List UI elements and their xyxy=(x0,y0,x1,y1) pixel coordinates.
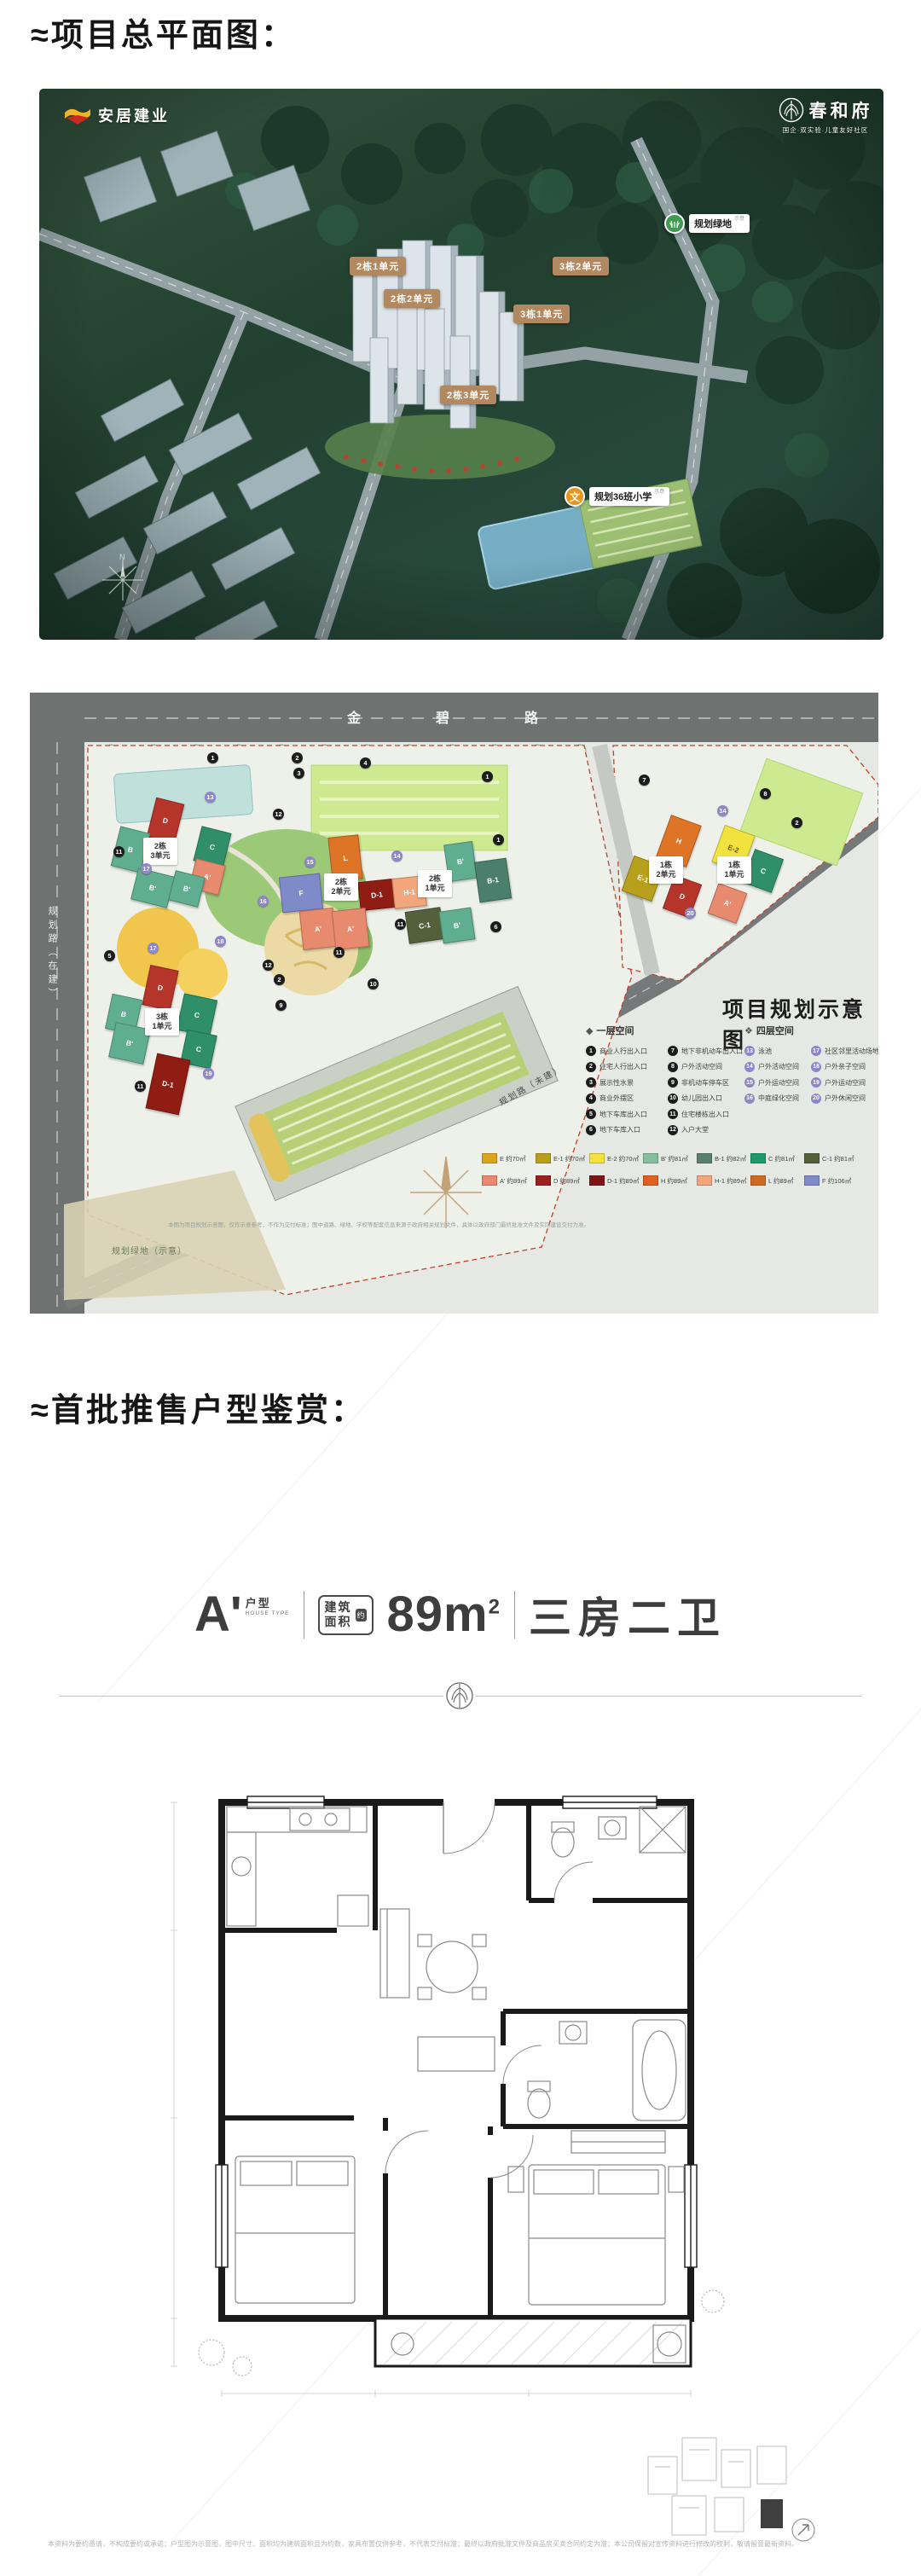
tower-label: 2栋2单元 xyxy=(384,289,440,308)
green-reserve-label: 规划绿地（示意） xyxy=(112,1244,187,1256)
legend-item: 18户外亲子空间 xyxy=(811,1062,878,1072)
compass-icon: N xyxy=(99,556,147,604)
map-marker: 12 xyxy=(273,809,284,820)
unit-type-swatch: D 约89㎡ xyxy=(536,1175,583,1186)
map-marker: 11 xyxy=(395,919,406,930)
unit-type-swatch: A' 约89㎡ xyxy=(482,1175,530,1186)
color-chip xyxy=(482,1175,497,1186)
area-label-box: 建筑 面积 约 xyxy=(318,1595,374,1635)
road-name-top: 金碧路 xyxy=(347,706,613,727)
map-marker: 2 xyxy=(274,974,285,985)
map-marker: 1 xyxy=(493,834,504,845)
unit-code-text: A' xyxy=(194,1590,242,1639)
map-marker: 19 xyxy=(203,1068,214,1079)
green-space-label: 规划绿地 xyxy=(694,217,732,230)
legend-ground-title: 一层空间 xyxy=(596,1024,634,1037)
legend-ground-col1: 1商业人行出入口2住宅人行出入口3展示性水景4商业外摆区5地下车库出入口6地下车… xyxy=(586,1046,647,1140)
unit-type-swatch: C 约81㎡ xyxy=(750,1153,798,1163)
map-marker: 17 xyxy=(148,943,159,954)
map-marker: 16 xyxy=(258,896,269,907)
color-chip xyxy=(643,1153,658,1163)
color-chip xyxy=(804,1153,820,1163)
legend-item: 2住宅人行出入口 xyxy=(586,1062,647,1072)
color-chip xyxy=(697,1153,712,1163)
site-plan-image[interactable]: 金碧路 规划路（在建） 规划路（未建） 规划绿地（示意） DCA'BB'B'DB… xyxy=(30,693,878,1314)
legend-item: 12入户大堂 xyxy=(668,1125,743,1135)
map-marker: 14 xyxy=(391,850,403,862)
color-chip xyxy=(750,1175,766,1186)
color-chip xyxy=(643,1175,658,1186)
tower-label: 3栋2单元 xyxy=(553,257,609,276)
divider-bar xyxy=(514,1591,515,1639)
color-chip xyxy=(536,1175,551,1186)
map-marker: 1 xyxy=(482,771,493,782)
project-tagline: 国企·双实验·儿童友好社区 xyxy=(766,125,883,135)
project-logo: 春和府 国企·双实验·儿童友好社区 xyxy=(766,97,883,135)
developer-logo: 安居建业 xyxy=(63,104,170,126)
building-block: A' xyxy=(332,908,370,950)
area-label-line1: 建筑 xyxy=(325,1600,352,1616)
tower-label: 2栋1单元 xyxy=(350,257,406,276)
heading-master-plan: ≈项目总平面图： xyxy=(31,9,296,55)
area-approx-badge: 约 xyxy=(356,1609,367,1622)
legend-ground-col2: 7地下非机动车出入口8户外活动空间9非机动车停车区10幼儿园出入口11住宅楼栋出… xyxy=(668,1046,743,1140)
school-icon: 文 xyxy=(565,486,585,507)
map-marker: 7 xyxy=(639,775,650,786)
unit-type-code: A' 户型 HOUSE TYPE xyxy=(194,1590,289,1639)
aerial-scene xyxy=(39,89,883,640)
project-name: 春和府 xyxy=(809,97,873,123)
compass-north-label: N xyxy=(119,553,125,561)
school-badge: 文 规划36班小学示意 xyxy=(565,486,669,507)
color-chip xyxy=(750,1153,766,1163)
grass-icon xyxy=(664,213,685,234)
color-chip xyxy=(536,1153,551,1163)
aerial-render-image[interactable]: 安居建业 春和府 国企·双实验·儿童友好社区 2栋1单元2栋2单元3栋2单元3栋… xyxy=(39,89,883,640)
legend-item: 3展示性水景 xyxy=(586,1077,647,1088)
building-block: B-1 xyxy=(474,858,512,903)
unit-type-swatch: E-1 约70㎡ xyxy=(536,1153,583,1163)
map-marker: 18 xyxy=(215,936,226,947)
road-name-left: 规划路（在建） xyxy=(45,906,59,1001)
unit-type-swatch: E-2 约70㎡ xyxy=(589,1153,637,1163)
map-marker: 1 xyxy=(207,752,218,763)
cluster-label: 1栋2单元 xyxy=(649,856,683,884)
legend-item: 6地下车库入口 xyxy=(586,1125,647,1135)
floorplan-title: A' 户型 HOUSE TYPE 建筑 面积 约 89m2 三房二卫 xyxy=(0,1578,921,1651)
unit-code-suffix-en: HOUSE TYPE xyxy=(246,1610,290,1617)
article-page: ≈项目总平面图： xyxy=(0,0,921,2576)
legend-item: 11住宅楼栋出入口 xyxy=(668,1109,743,1119)
map-marker: 11 xyxy=(333,947,345,958)
legend-item: 8户外活动空间 xyxy=(668,1062,743,1072)
unit-type-swatches-row2: A' 约89㎡D 约89㎡D-1 约89㎡H 约89㎡H-1 约89㎡L 约89… xyxy=(482,1175,852,1186)
cluster-label: 2栋1单元 xyxy=(418,870,452,897)
legend-item: 14户外活动空间 xyxy=(744,1062,799,1072)
cluster-label: 1栋1单元 xyxy=(717,856,751,884)
unit-type-swatch: D-1 约89㎡ xyxy=(589,1175,637,1186)
map-marker: 12 xyxy=(263,960,274,971)
map-marker: 9 xyxy=(275,1000,287,1011)
divider-bar xyxy=(304,1591,304,1639)
tree-emblem-icon xyxy=(779,97,804,123)
legend-item: 1商业人行出入口 xyxy=(586,1046,647,1056)
highlighted-unit xyxy=(761,2499,783,2528)
map-marker: 10 xyxy=(368,978,379,989)
unit-type-swatch: C-1 约81㎡ xyxy=(804,1153,852,1163)
legend-item: 9非机动车停车区 xyxy=(668,1077,743,1088)
developer-name: 安居建业 xyxy=(98,104,170,126)
building-block: F xyxy=(279,873,323,914)
legend-item: 7地下非机动车出入口 xyxy=(668,1046,743,1056)
map-marker: 2 xyxy=(292,752,303,763)
map-marker: 3 xyxy=(293,768,304,779)
area-value: 89m2 xyxy=(387,1590,501,1639)
color-chip xyxy=(589,1153,605,1163)
map-marker: 5 xyxy=(104,950,115,961)
map-marker: 2 xyxy=(791,817,802,828)
tower-label: 3栋1单元 xyxy=(513,305,570,323)
building-block: D-1 xyxy=(357,879,396,911)
green-space-badge: 规划绿地示意 xyxy=(664,213,750,234)
map-marker: 15 xyxy=(304,856,316,867)
legend-item: 16中庭绿化空间 xyxy=(744,1094,799,1104)
floorplan-drawing[interactable] xyxy=(162,1755,759,2405)
legend-podium-col1: 13泳池14户外活动空间15户外运动空间16中庭绿化空间 xyxy=(744,1046,799,1109)
color-chip xyxy=(589,1175,605,1186)
green-space-note: 示意 xyxy=(734,217,744,223)
area-label-line2: 面积 xyxy=(325,1615,352,1630)
map-marker: 4 xyxy=(360,757,371,769)
leaf-emblem-icon xyxy=(443,1680,476,1712)
map-marker: 14 xyxy=(717,805,728,816)
color-chip xyxy=(804,1175,820,1186)
building-block: B' xyxy=(439,908,476,944)
site-plan-disclaimer: 本图为项目规划示意图，仅作示意参考，不作为交付标准；图中道路、绿地、学校等配套信… xyxy=(168,1221,863,1229)
layers-icon: ❖ xyxy=(744,1025,753,1036)
color-chip xyxy=(697,1175,712,1186)
legend-podium-col2: 17社区邻里活动场地18户外亲子空间19户外运动空间20户外休闲空间 xyxy=(811,1046,878,1109)
legend-item: 10幼儿园出入口 xyxy=(668,1094,743,1104)
legend-podium-title: 四层空间 xyxy=(756,1024,794,1037)
legend-item: 20户外休闲空间 xyxy=(811,1094,878,1104)
map-marker: 13 xyxy=(205,792,216,803)
flag-emblem-icon xyxy=(63,104,92,126)
section-divider xyxy=(60,1696,861,1697)
map-marker: 20 xyxy=(685,908,696,919)
school-label: 规划36班小学 xyxy=(594,490,652,503)
unit-type-swatches-row1: E 约70㎡E-1 约70㎡E-2 约70㎡B' 约81㎡B-1 约82㎡C 约… xyxy=(482,1153,852,1163)
unit-type-swatch: H 约89㎡ xyxy=(643,1175,691,1186)
legend-item: 17社区邻里活动场地 xyxy=(811,1046,878,1056)
unit-type-swatch: E 约70㎡ xyxy=(482,1153,530,1163)
legend-ground-header: ◆ 一层空间 xyxy=(586,1024,634,1037)
fine-print-disclaimer: 本资料为要约邀请，不构成要约或承诺；户型图为示意图，图中尺寸、面积均为建筑面积且… xyxy=(48,2540,877,2549)
unit-type-swatch: H-1 约89㎡ xyxy=(697,1175,744,1186)
tower-label: 2栋3单元 xyxy=(440,386,496,404)
unit-type-swatch: B' 约81㎡ xyxy=(643,1153,691,1163)
legend-item: 19户外运动空间 xyxy=(811,1077,878,1088)
unit-code-suffix: 户型 xyxy=(246,1597,290,1610)
map-marker: 17 xyxy=(141,863,152,874)
map-marker: 8 xyxy=(760,788,771,799)
diamond-icon: ◆ xyxy=(586,1025,593,1036)
cluster-label: 2栋2单元 xyxy=(324,873,358,901)
room-count-label: 三房二卫 xyxy=(529,1584,727,1645)
map-marker: 11 xyxy=(113,846,125,857)
cluster-label: 2栋3单元 xyxy=(143,838,177,865)
color-chip xyxy=(482,1153,497,1163)
legend-podium-header: ❖ 四层空间 xyxy=(744,1024,794,1037)
cluster-label: 3栋1单元 xyxy=(145,1008,179,1036)
unit-type-swatch: B-1 约82㎡ xyxy=(697,1153,744,1163)
unit-type-swatch: L 约89㎡ xyxy=(750,1175,798,1186)
map-marker: 11 xyxy=(135,1081,146,1092)
heading-floorplans: ≈首批推售户型鉴赏： xyxy=(31,1384,366,1430)
legend-item: 13泳池 xyxy=(744,1046,799,1056)
unit-type-swatch: F 约106㎡ xyxy=(804,1175,852,1186)
legend-item: 4商业外摆区 xyxy=(586,1094,647,1104)
legend-item: 15户外运动空间 xyxy=(744,1077,799,1088)
school-note: 示意 xyxy=(654,490,664,496)
map-marker: 6 xyxy=(490,921,501,932)
legend-item: 5地下车库出入口 xyxy=(586,1109,647,1119)
